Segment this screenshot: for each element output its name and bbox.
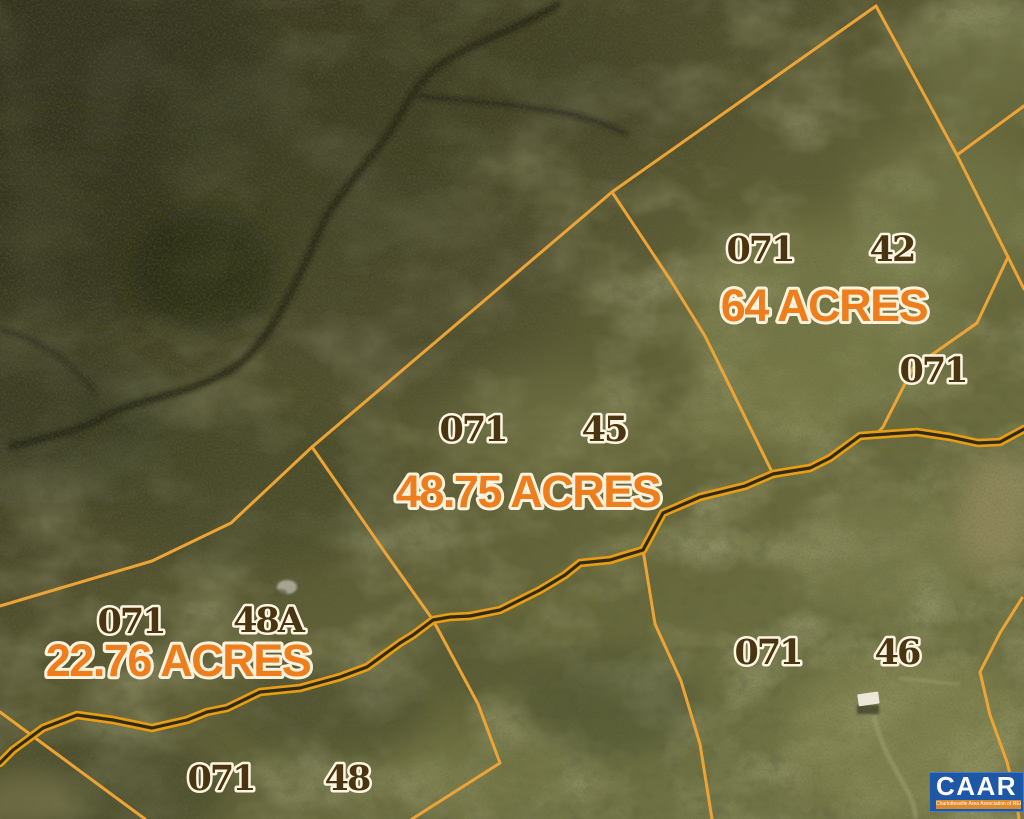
house-shadow (857, 705, 879, 714)
parcel-id-label: 071 (726, 229, 793, 270)
parcel-lot-label: 46 (875, 632, 920, 673)
acreage-label: 48.75 ACRES (396, 466, 661, 517)
parcel-id-label: 071 (734, 632, 801, 673)
acreage-label: 22.76 ACRES (46, 635, 311, 686)
aerial-map-canvas: 071 42 64 ACRES 071 45 48.75 ACRES 071 4… (0, 0, 1024, 819)
caar-logo-text: CAAR (929, 772, 1024, 800)
parcel-id-label: 071 (899, 350, 966, 391)
parcel-lot-label: 48 (325, 758, 370, 799)
caar-logo: CAAR Charlottesville Area Association of… (929, 772, 1024, 812)
parcel-lot-label: 42 (870, 229, 915, 270)
structure-shadow (275, 589, 287, 597)
parcel-map: 071 42 64 ACRES 071 45 48.75 ACRES 071 4… (0, 0, 1024, 819)
parcel-id-label: 071 (439, 409, 506, 450)
caar-logo-tagline: Charlottesville Area Association of REAL… (936, 800, 1021, 809)
acreage-label: 64 ACRES (721, 280, 928, 331)
parcel-id-label: 071 (187, 758, 254, 799)
parcel-lot-label: 45 (582, 409, 627, 450)
